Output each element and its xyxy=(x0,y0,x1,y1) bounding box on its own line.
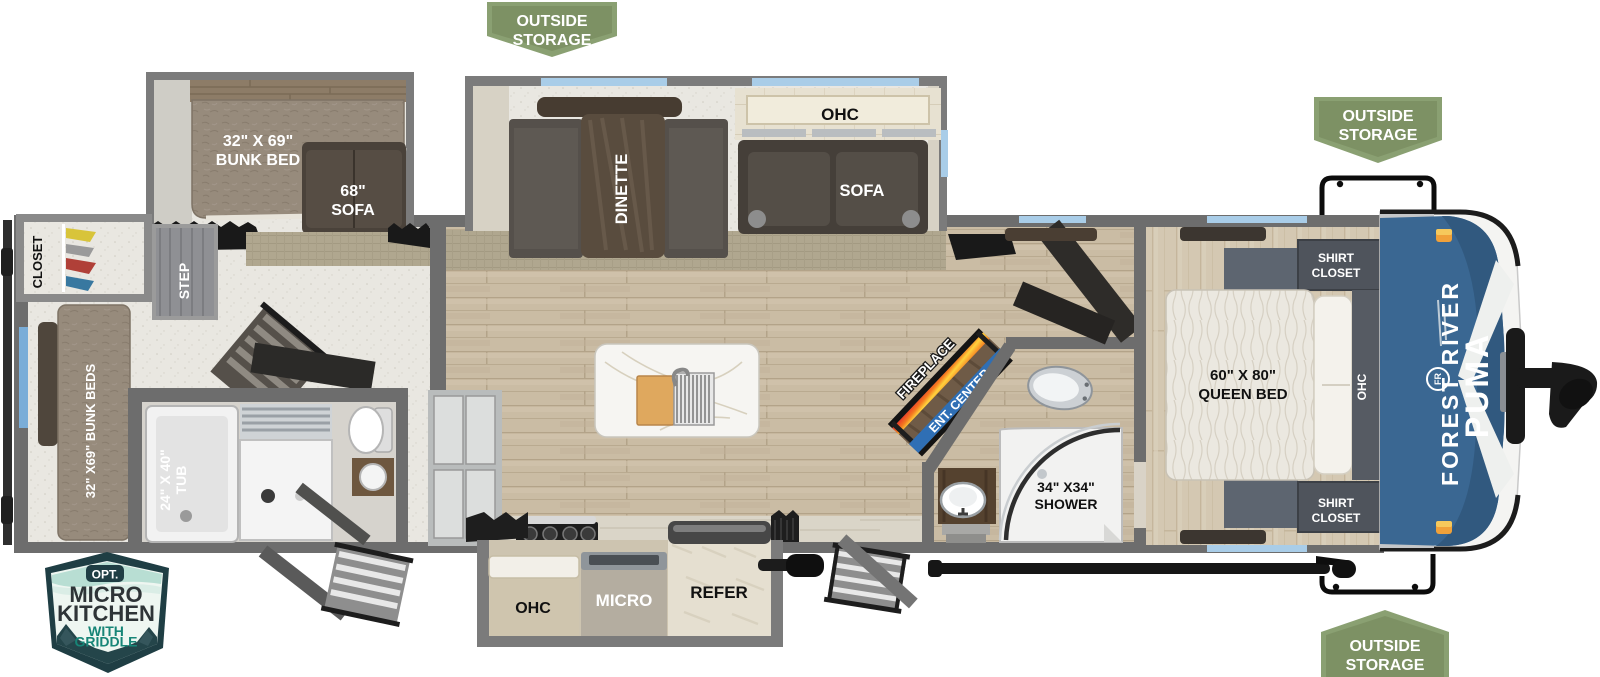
svg-text:SHIRT: SHIRT xyxy=(1318,496,1355,510)
svg-text:BUNK BED: BUNK BED xyxy=(216,152,300,169)
svg-text:SHIRT: SHIRT xyxy=(1318,251,1355,265)
svg-text:OUTSIDE: OUTSIDE xyxy=(1349,638,1420,655)
svg-text:QUEEN BED: QUEEN BED xyxy=(1198,386,1287,403)
svg-text:STORAGE: STORAGE xyxy=(513,32,592,49)
svg-text:SOFA: SOFA xyxy=(331,202,375,219)
svg-text:OHC: OHC xyxy=(515,600,551,617)
svg-text:DINETTE: DINETTE xyxy=(613,154,631,225)
svg-text:OHC: OHC xyxy=(821,105,859,124)
svg-text:PUMA: PUMA xyxy=(1459,332,1495,438)
svg-text:REFER: REFER xyxy=(690,583,748,602)
svg-text:CLOSET: CLOSET xyxy=(30,236,45,289)
svg-text:OHC: OHC xyxy=(1355,373,1369,400)
svg-text:OUTSIDE: OUTSIDE xyxy=(516,13,587,30)
svg-text:GRIDDLE: GRIDDLE xyxy=(75,634,138,650)
svg-text:OPT.: OPT. xyxy=(92,568,119,582)
svg-text:STEP: STEP xyxy=(176,263,192,300)
svg-text:OUTSIDE: OUTSIDE xyxy=(1342,108,1413,125)
svg-text:60" X 80": 60" X 80" xyxy=(1210,367,1276,384)
svg-text:STORAGE: STORAGE xyxy=(1339,127,1418,144)
svg-text:STORAGE: STORAGE xyxy=(1346,657,1425,674)
svg-text:32" X 69": 32" X 69" xyxy=(223,133,293,150)
svg-text:MICRO: MICRO xyxy=(596,591,653,610)
svg-text:SHOWER: SHOWER xyxy=(1035,496,1098,512)
svg-text:34" X34": 34" X34" xyxy=(1037,479,1095,495)
svg-text:CLOSET: CLOSET xyxy=(1312,266,1361,280)
svg-text:CLOSET: CLOSET xyxy=(1312,511,1361,525)
svg-text:SOFA: SOFA xyxy=(840,182,885,200)
svg-text:68": 68" xyxy=(340,183,365,200)
svg-text:32" X69" BUNK BEDS: 32" X69" BUNK BEDS xyxy=(83,363,98,498)
